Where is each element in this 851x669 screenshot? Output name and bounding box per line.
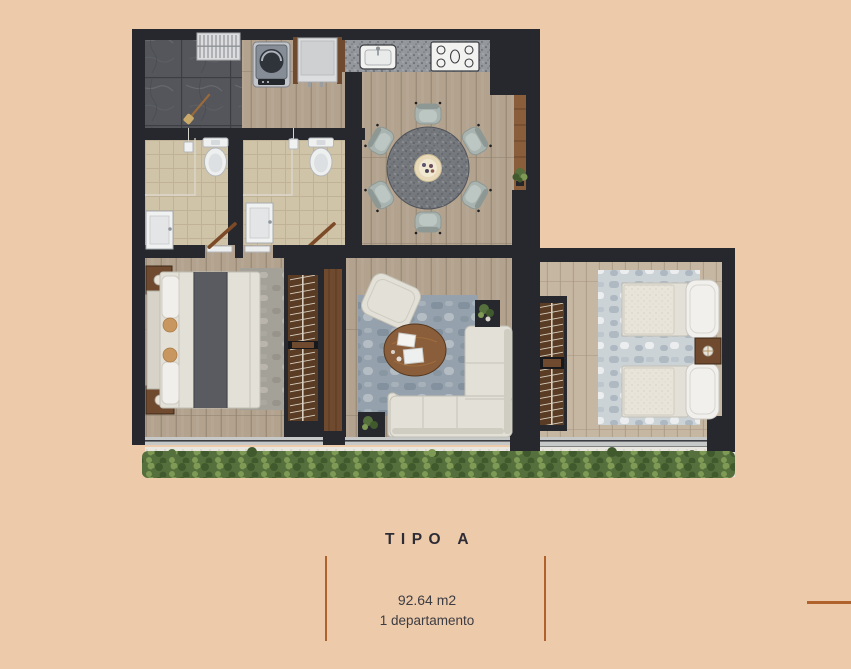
- stove: [431, 42, 479, 71]
- vent-grille: [197, 33, 240, 60]
- floor-plan-svg: [132, 29, 737, 483]
- kitchen-sink: [360, 45, 396, 69]
- twin-bed: [622, 363, 719, 419]
- master-bedroom: [146, 245, 346, 437]
- dining-chair: [415, 102, 442, 124]
- floor-plan-render: [132, 29, 737, 483]
- left-divider-line: [325, 556, 327, 641]
- master-bed: [147, 272, 260, 408]
- nightstand: [695, 338, 721, 364]
- balcony-hedge: [142, 447, 735, 478]
- plan-title: TIPO A: [277, 531, 577, 549]
- kitchen: [338, 40, 490, 72]
- dining-table: [387, 127, 469, 209]
- twin-bed: [622, 280, 719, 338]
- right-divider-line: [544, 556, 546, 641]
- coffee-table: [384, 324, 446, 376]
- plant-stand: [475, 300, 500, 327]
- dining-chair: [415, 212, 442, 234]
- bathroom-door: [146, 211, 173, 249]
- master-closet: [284, 245, 346, 437]
- plant-stand: [358, 412, 385, 437]
- bathroom-door: [246, 203, 273, 243]
- plan-units: 1 departamento: [277, 613, 577, 628]
- page: TIPO A 92.64 m2 1 departamento: [0, 0, 851, 669]
- toilet: [203, 138, 228, 176]
- bedroom2-closet: [537, 296, 567, 431]
- plan-area: 92.64 m2: [277, 592, 577, 608]
- right-edge-accent-line: [807, 601, 851, 604]
- water-heater: [293, 37, 342, 87]
- washing-machine: [253, 42, 290, 87]
- toilet: [309, 138, 334, 176]
